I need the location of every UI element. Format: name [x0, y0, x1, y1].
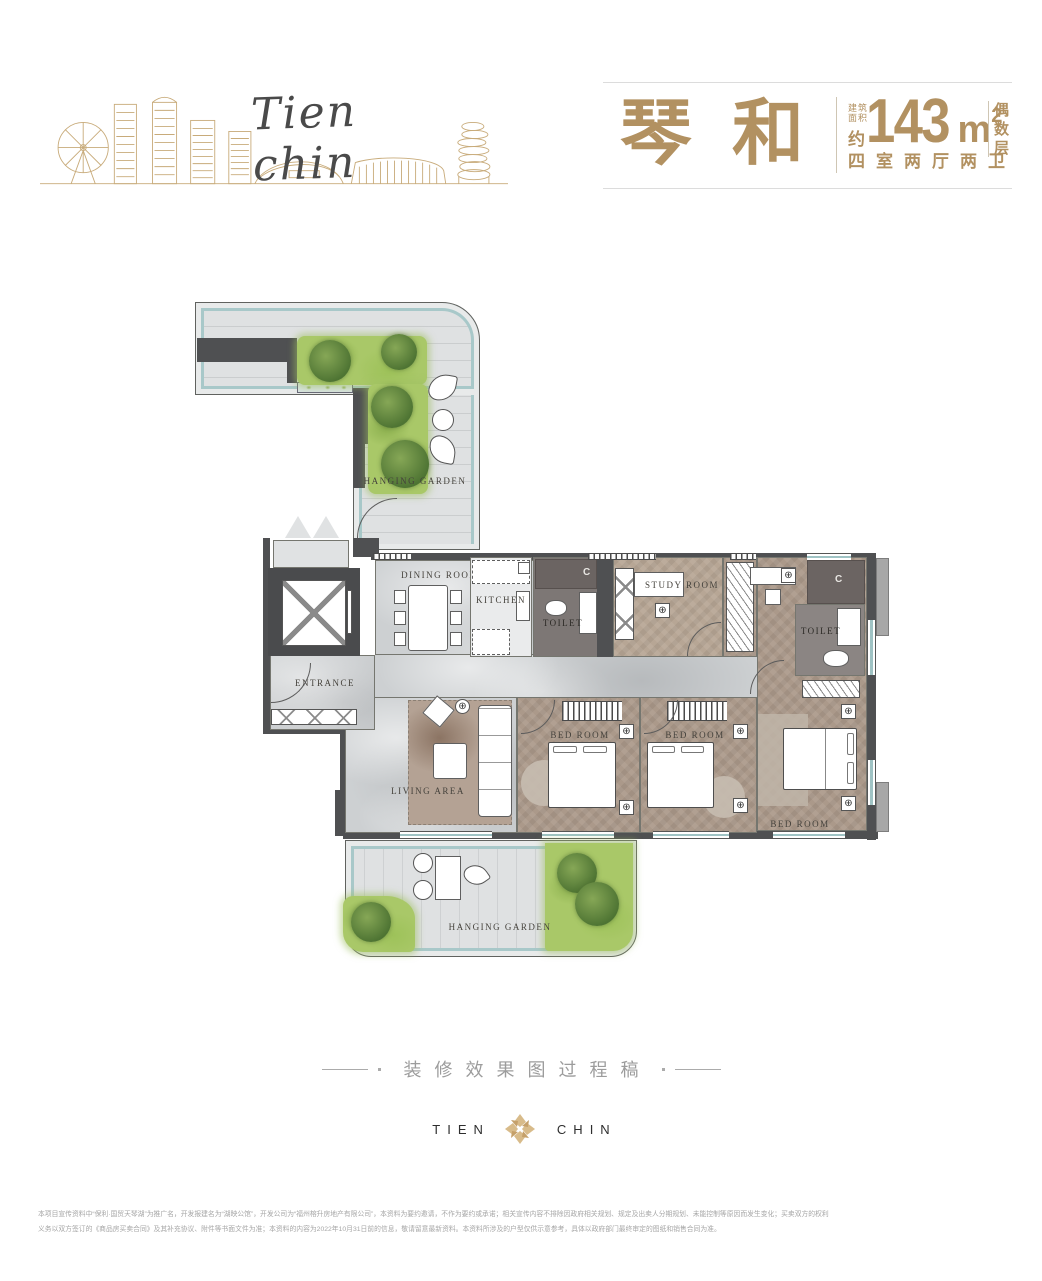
decorative-dot: [378, 1068, 381, 1071]
area-number: 143: [866, 94, 949, 150]
brand-script-text: Tien chin: [250, 83, 453, 192]
elevator-lobby: [273, 540, 349, 568]
tree-icon: [309, 340, 351, 382]
disclaimer-line-2: 义务以双方签订的《商品房买卖合同》及其补充协议、附件等书面文件为准；本资料的内容…: [38, 1222, 1013, 1237]
bed: [783, 728, 857, 790]
fixture-symbol-icon: ⊕: [841, 796, 856, 811]
area-prefix-line2: 面积: [848, 113, 868, 123]
fixture-symbol-icon: ⊕: [733, 724, 748, 739]
window: [867, 760, 876, 805]
dining-chair: [450, 590, 462, 604]
pillow: [652, 746, 675, 753]
pillow: [847, 733, 854, 755]
wc-toilet: [545, 600, 567, 616]
logo-text-right: CHIN: [557, 1122, 617, 1137]
room-label-kitchen: KITCHEN: [470, 595, 532, 605]
stair-icon: [313, 516, 339, 538]
area-value: 143m2: [866, 94, 1002, 152]
fridge: [518, 562, 530, 574]
pillow: [553, 746, 577, 753]
shoe-cabinet: [271, 709, 357, 725]
room-label-toilet: TOILET: [533, 618, 593, 628]
process-note-row: 装修效果图过程稿: [0, 1056, 1042, 1082]
dining-chair: [394, 590, 406, 604]
header-rule-bottom: [603, 188, 1012, 189]
tree-icon: [381, 334, 417, 370]
header-rule-top: [603, 82, 1012, 83]
window: [400, 831, 492, 839]
wardrobe: [562, 701, 622, 721]
dining-chair: [450, 611, 462, 625]
decorative-line: [322, 1069, 368, 1070]
dining-chair: [394, 632, 406, 646]
tree-icon: [575, 882, 619, 926]
room-label-bedroom: BED ROOM: [760, 819, 840, 829]
room-label-toilet: TOILET: [793, 626, 849, 636]
fixture-symbol-icon: ⊕: [619, 724, 634, 739]
room-label-hanging-garden: HANGING GARDEN: [435, 922, 565, 932]
decorative-line: [675, 1069, 721, 1070]
window: [542, 831, 614, 839]
title-divider-1: [836, 97, 837, 173]
pillow: [681, 746, 704, 753]
sofa: [478, 705, 512, 817]
wc-toilet: [823, 650, 849, 667]
fixture-symbol-icon: ⊕: [841, 704, 856, 719]
spiral-tower-icon: [458, 122, 490, 183]
tree-icon: [371, 386, 413, 428]
area-prefix: 建筑 面积: [848, 103, 868, 123]
window-sill: [373, 553, 411, 560]
hallway: [345, 655, 757, 697]
brand-logo: TIEN CHIN: [0, 1112, 1042, 1146]
room-label-bedroom: BED ROOM: [655, 730, 735, 740]
garden-chair: [413, 880, 433, 900]
layout-description: 四室两厅两卫: [848, 147, 1016, 172]
unit-name-title: 琴和: [620, 94, 844, 174]
room-label-study: STUDY ROOM: [640, 580, 724, 590]
tree-icon: [351, 902, 391, 942]
ac-platform: [876, 782, 889, 832]
logo-text-left: TIEN: [432, 1122, 490, 1137]
study-wardrobe: [615, 568, 634, 640]
room-label-bedroom: BED ROOM: [540, 730, 620, 740]
elevator-car: [282, 580, 346, 646]
kitchen-counter: [472, 629, 510, 655]
terrace-wall: [287, 338, 297, 383]
window: [867, 620, 876, 675]
marker-c: C: [835, 574, 842, 585]
pillow: [847, 762, 854, 784]
garden-table: [435, 856, 461, 900]
fixture-symbol-icon: ⊕: [619, 800, 634, 815]
garden-chair: [413, 853, 433, 873]
stool: [765, 589, 781, 605]
fixture-symbol-icon: ⊕: [655, 603, 670, 618]
area-prefix-line1: 建筑: [848, 103, 868, 113]
process-note: 装修效果图过程稿: [404, 1056, 652, 1082]
dining-chair: [394, 611, 406, 625]
terrace-wall: [197, 338, 287, 362]
ac-platform: [876, 558, 889, 636]
window: [773, 831, 845, 839]
brochure-page: Tien chin 琴和 建筑 面积 约 143m2 偶数层 四室两厅两卫 HA…: [0, 0, 1042, 1281]
garden-table: [432, 409, 454, 431]
logo-flower-icon: [503, 1112, 537, 1146]
dining-chair: [450, 632, 462, 646]
window: [653, 831, 729, 839]
fixture-symbol-icon: ⊕: [781, 568, 796, 583]
coffee-table: [433, 743, 467, 779]
dining-table: [408, 585, 448, 651]
floor-plan: HANGING GARDEN ENTRANCE DINING ROOM: [185, 290, 925, 970]
marker-c: C: [583, 567, 590, 578]
disclaimer-line-1: 本项目宣传资料中“保利·国贸天琴湖”为推广名，开发报建名为“湖映公馆”，开发公司…: [38, 1207, 1013, 1222]
decorative-dot: [662, 1068, 665, 1071]
elevator-door: [347, 590, 352, 634]
window: [807, 553, 851, 560]
room-label-hanging-garden: HANGING GARDEN: [350, 476, 480, 486]
stair-icon: [285, 516, 311, 538]
ferris-wheel-icon: [58, 122, 108, 183]
blanket-line: [825, 729, 826, 789]
window-sill: [588, 553, 656, 560]
fixture-symbol-icon: ⊕: [733, 798, 748, 813]
interior-wall: [597, 557, 613, 657]
tower-icons: [114, 97, 251, 183]
window-sill: [730, 553, 756, 560]
wardrobe: [802, 680, 860, 698]
fixture-symbol-icon: ⊕: [455, 699, 470, 714]
area-unit: m: [957, 109, 991, 151]
room-label-living: LIVING AREA: [383, 786, 473, 796]
pillow: [583, 746, 607, 753]
